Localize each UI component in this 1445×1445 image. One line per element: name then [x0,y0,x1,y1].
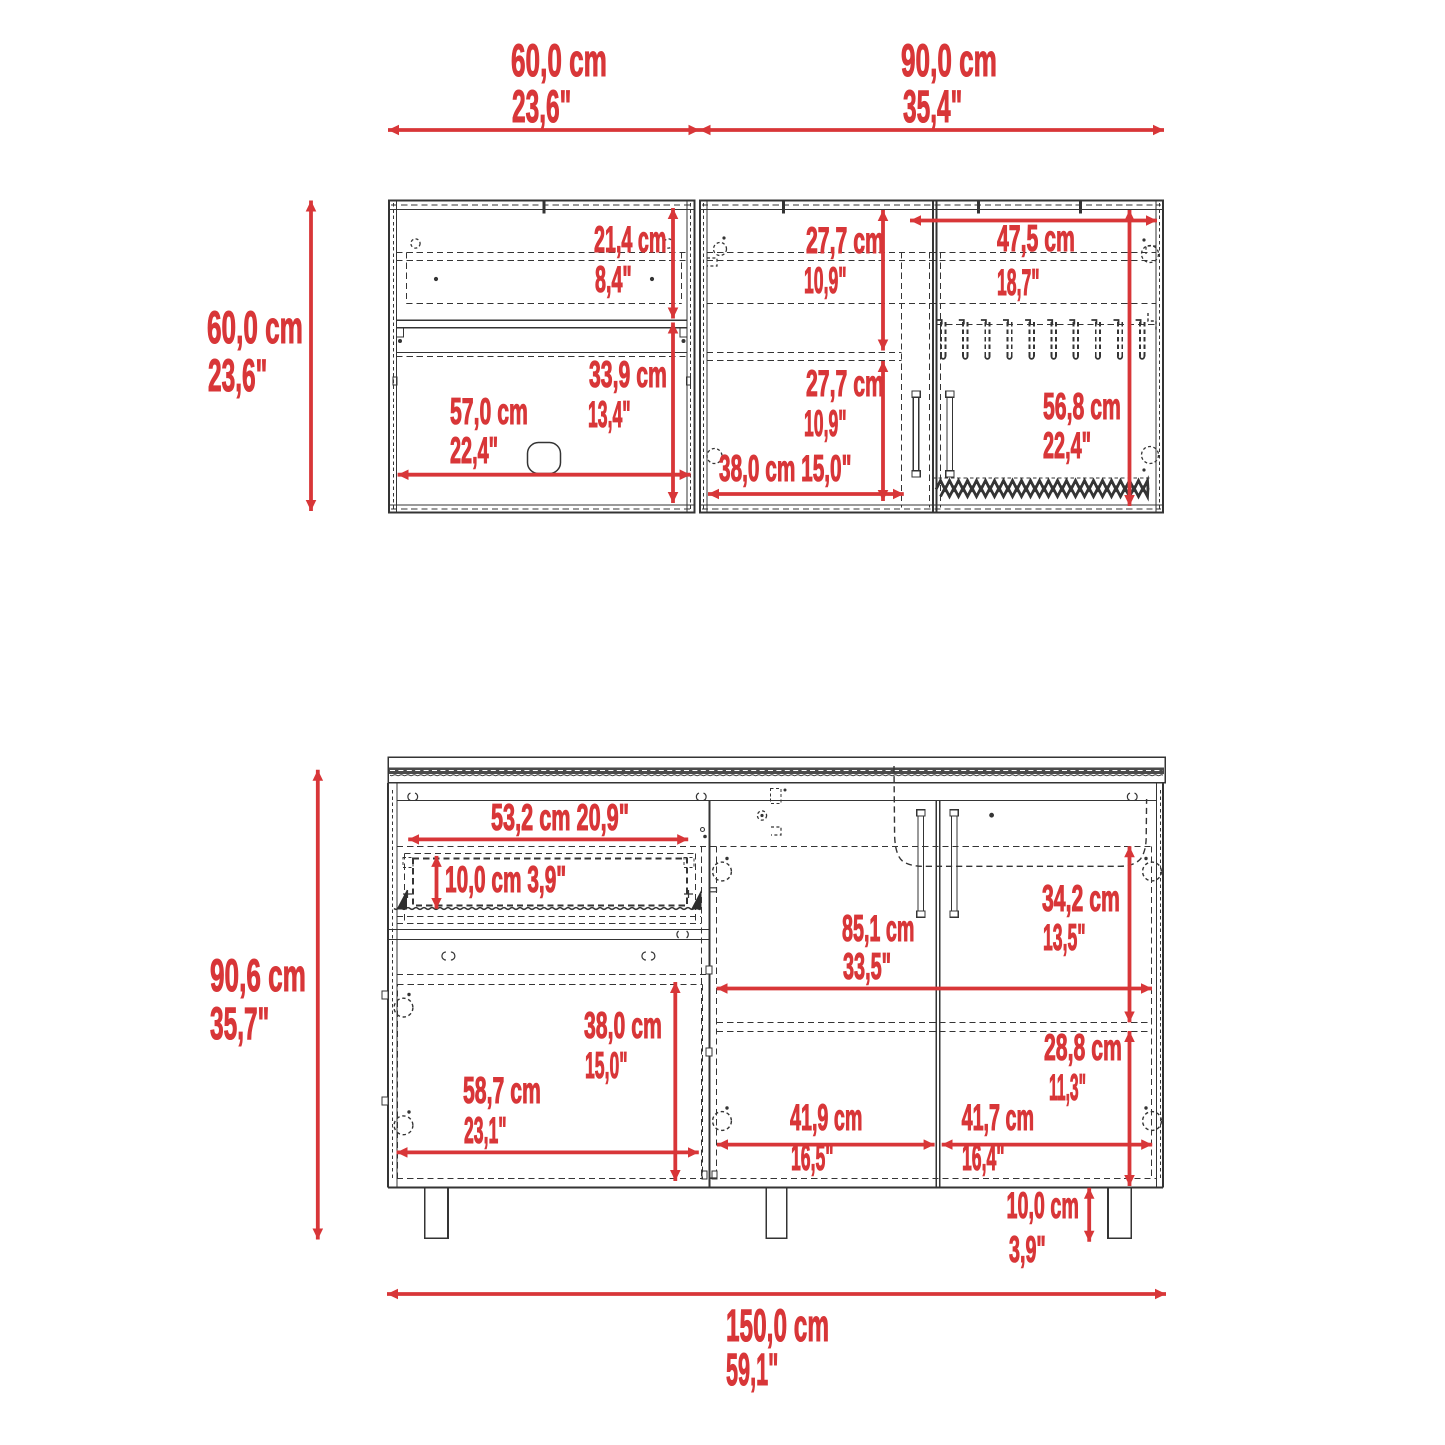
svg-text:13,5": 13,5" [1043,917,1086,958]
svg-text:58,7 cm: 58,7 cm [463,1070,541,1111]
svg-text:47,5 cm: 47,5 cm [997,218,1075,259]
svg-text:33,9 cm: 33,9 cm [589,354,667,395]
svg-text:57,0 cm: 57,0 cm [450,391,528,432]
svg-text:22,4": 22,4" [450,430,498,471]
svg-text:23,1": 23,1" [464,1110,507,1151]
svg-text:18,7": 18,7" [997,262,1040,303]
svg-text:60,0 cm: 60,0 cm [511,35,607,86]
svg-text:41,7 cm: 41,7 cm [962,1097,1034,1138]
svg-text:27,7 cm: 27,7 cm [806,220,884,261]
svg-text:23,6": 23,6" [208,350,267,401]
svg-text:27,7 cm: 27,7 cm [806,363,884,404]
svg-text:3,9": 3,9" [1009,1229,1046,1270]
svg-text:90,0 cm: 90,0 cm [901,35,997,86]
svg-text:10,0 cm 3,9": 10,0 cm 3,9" [445,859,566,900]
svg-text:38,0 cm: 38,0 cm [584,1005,662,1046]
svg-text:28,8 cm: 28,8 cm [1044,1027,1122,1068]
svg-text:23,6": 23,6" [512,81,571,132]
svg-text:56,8 cm: 56,8 cm [1043,386,1121,427]
svg-text:34,2 cm: 34,2 cm [1042,878,1120,919]
svg-text:85,1 cm: 85,1 cm [842,908,914,949]
svg-text:8,4": 8,4" [595,259,632,300]
svg-text:38,0 cm 15,0": 38,0 cm 15,0" [719,448,852,489]
svg-text:90,6 cm: 90,6 cm [210,950,306,1001]
svg-text:41,9 cm: 41,9 cm [790,1097,862,1138]
svg-text:53,2 cm 20,9": 53,2 cm 20,9" [491,797,629,838]
svg-text:10,9": 10,9" [804,403,847,444]
svg-text:10,9": 10,9" [804,260,847,301]
svg-text:15,0": 15,0" [585,1045,628,1086]
svg-text:13,4": 13,4" [588,394,631,435]
svg-text:10,0 cm: 10,0 cm [1007,1185,1079,1226]
svg-text:16,4": 16,4" [962,1137,1005,1178]
svg-text:33,5": 33,5" [843,946,891,987]
svg-text:35,4": 35,4" [903,81,962,132]
svg-text:22,4": 22,4" [1043,425,1091,466]
svg-text:35,7": 35,7" [210,998,269,1049]
svg-text:11,3": 11,3" [1049,1067,1086,1108]
svg-text:59,1": 59,1" [726,1344,778,1395]
svg-text:16,5": 16,5" [791,1137,834,1178]
svg-text:60,0 cm: 60,0 cm [207,302,303,353]
svg-text:21,4 cm: 21,4 cm [594,219,666,260]
